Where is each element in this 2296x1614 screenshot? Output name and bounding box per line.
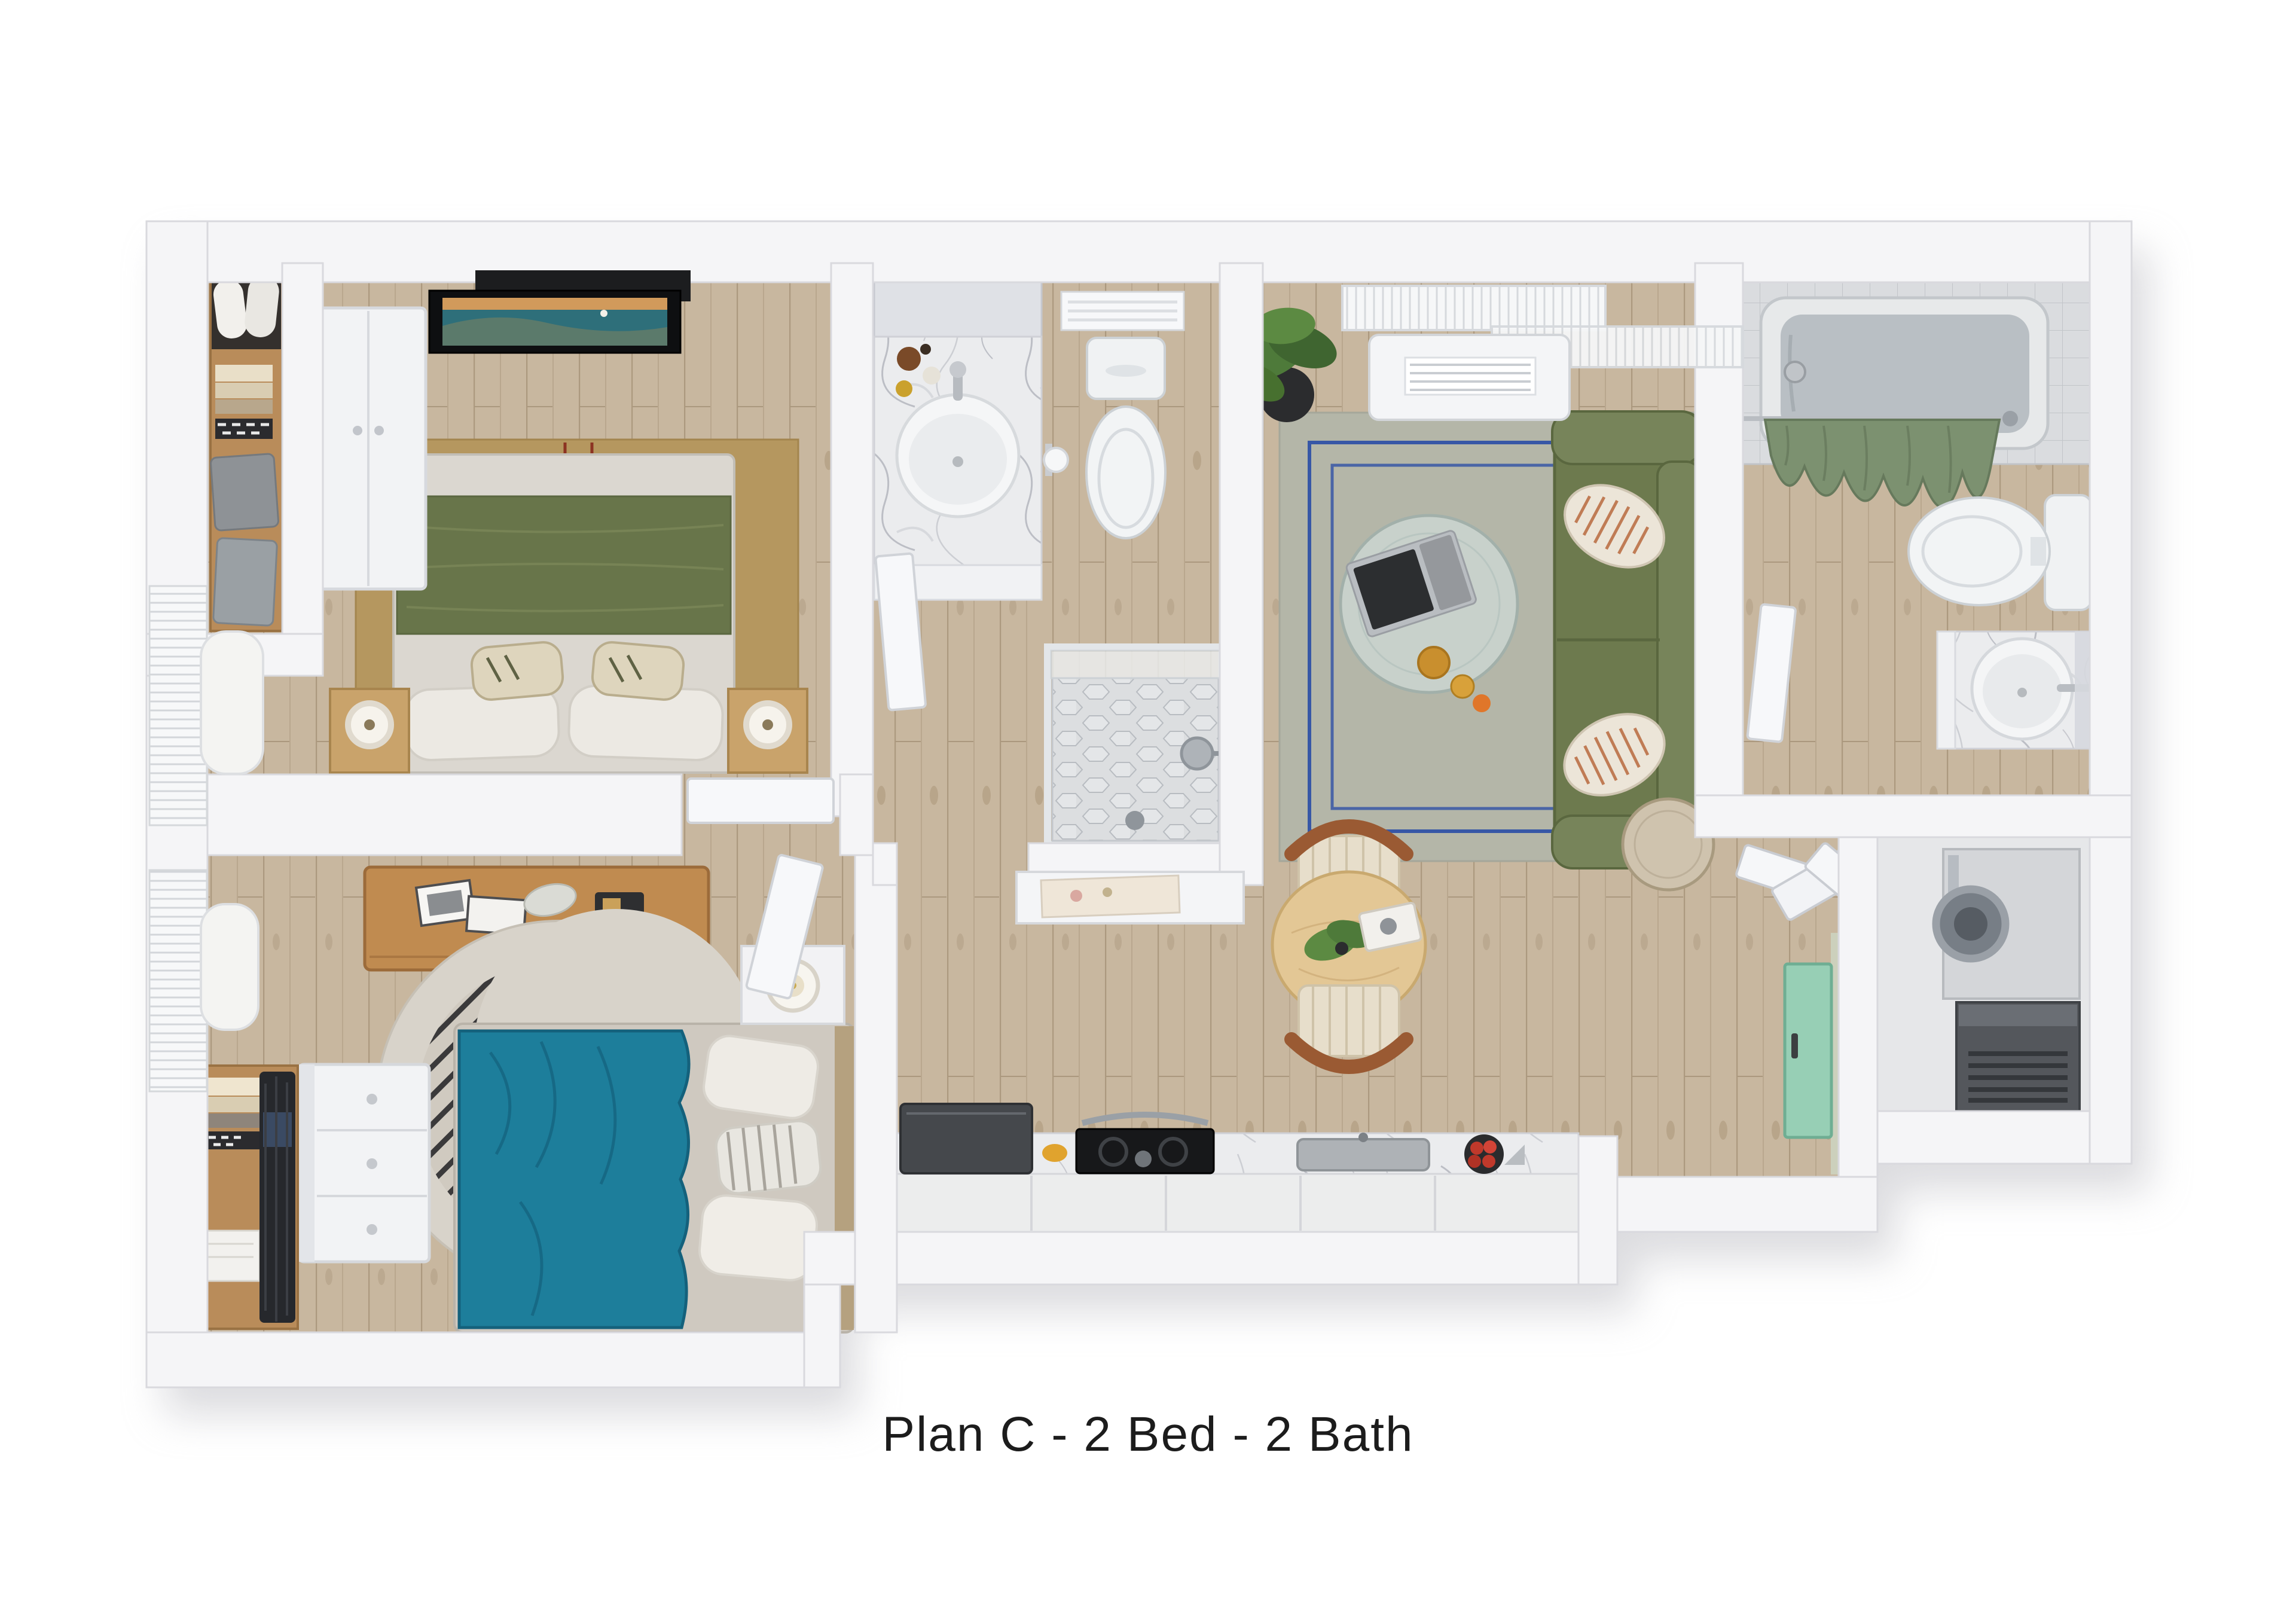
floorplan-page: Plan C - 2 Bed - 2 Bath [0,0,2296,1614]
front-door [1785,964,1831,1137]
wall-bathroom1-bottom-left [873,843,897,885]
nightstand-left [330,689,409,773]
ac-unit [1369,335,1570,420]
yellow-dish [1042,1144,1067,1162]
shower-head-icon [1181,738,1213,769]
dresser [299,1064,429,1262]
wall-bedroom1-bedroom2-stub [840,774,873,855]
curtain-panel [201,631,263,774]
wall-kitchen-bottom [804,1232,1617,1285]
wall-entry-threshold [1617,1177,1877,1232]
bedroom1-door [688,779,833,823]
dining-chair [1291,986,1406,1067]
hall-art-shelf [1016,872,1244,923]
wall-kitchen-return [1578,1136,1617,1285]
closet-primary [210,269,282,631]
drink-icon [1418,647,1449,678]
toilet [1086,338,1165,538]
tub-faucet-icon [1785,362,1805,382]
curtain-panel [201,904,258,1030]
bed2-striped-pillow [715,1119,823,1195]
wall-bedroom1-bedroom2 [207,774,682,855]
wall-bathroom2-bottom [1695,795,2132,837]
mechanical-unit [1956,1002,2080,1111]
wall-vent [1061,292,1184,330]
wall-exterior-bottom-left [146,1332,840,1387]
bed2-pillow [701,1033,820,1121]
wall-closet1-right [282,263,323,634]
shower-glass-panel [1051,651,1220,678]
folded-clothes [215,365,273,439]
wall-bedroom1-bathroom1 [831,263,873,816]
art-ledge-print [1041,875,1180,917]
shower-drain-icon [1125,811,1144,830]
utility-closet [1877,837,2090,1111]
kitchen-sink [1297,1133,1429,1170]
toilet-2 [1909,495,2092,610]
door-handle-icon [1791,1033,1798,1058]
bed-accent-pillow [470,641,564,701]
nightstand-right [728,689,807,773]
bed2-pillow [698,1194,819,1282]
bedroom1-bed [393,454,734,773]
storage-bin [213,538,277,626]
kitchen-cabinets [897,1174,1578,1232]
orange-icon [1473,694,1491,712]
walk-in-shower [1048,647,1222,844]
wall-exterior-right [2090,221,2132,1164]
washer-dryer [1936,849,2080,999]
wall-bathroom1-living [1220,263,1263,885]
vanity-2 [1937,631,2092,749]
wall-exterior-top [146,221,2132,282]
plan-caption: Plan C - 2 Bed - 2 Bath [0,1406,2296,1463]
teal-duvet [459,1031,689,1328]
wall-utility-left [1839,837,1877,1177]
wall-bedroom2-right [855,855,897,1332]
wardrobe [311,308,426,589]
bedroom2-bed [454,1024,854,1332]
storage-bin [210,453,279,530]
drink-icon [1451,675,1474,698]
floorplan-render [0,0,2296,1614]
